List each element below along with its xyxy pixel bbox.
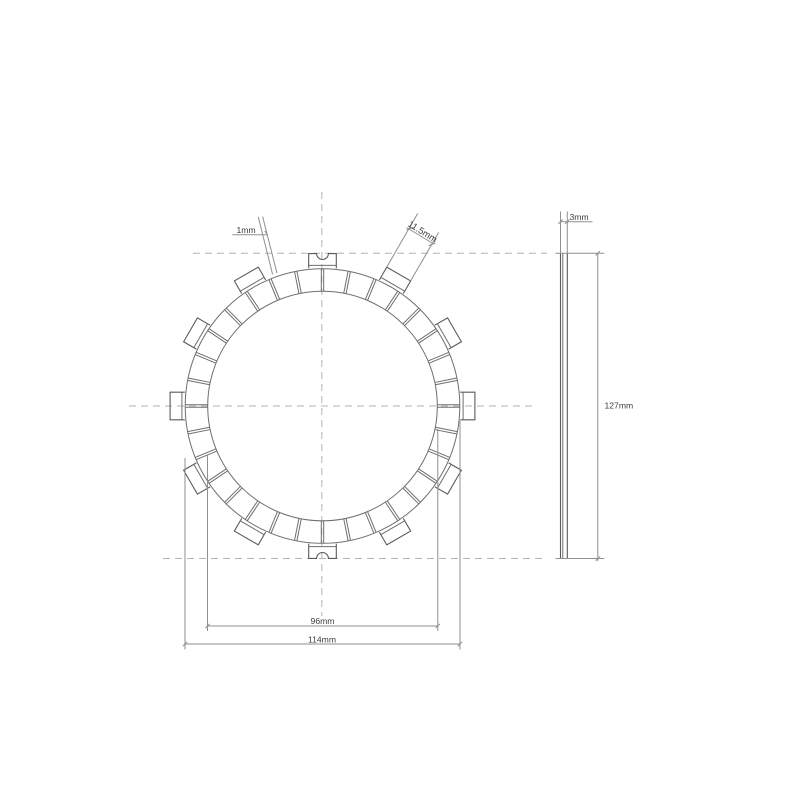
svg-text:114mm: 114mm: [308, 634, 336, 644]
svg-text:127mm: 127mm: [605, 401, 634, 411]
svg-text:3mm: 3mm: [570, 212, 589, 222]
svg-text:96mm: 96mm: [311, 616, 335, 626]
svg-text:1mm: 1mm: [237, 225, 256, 235]
